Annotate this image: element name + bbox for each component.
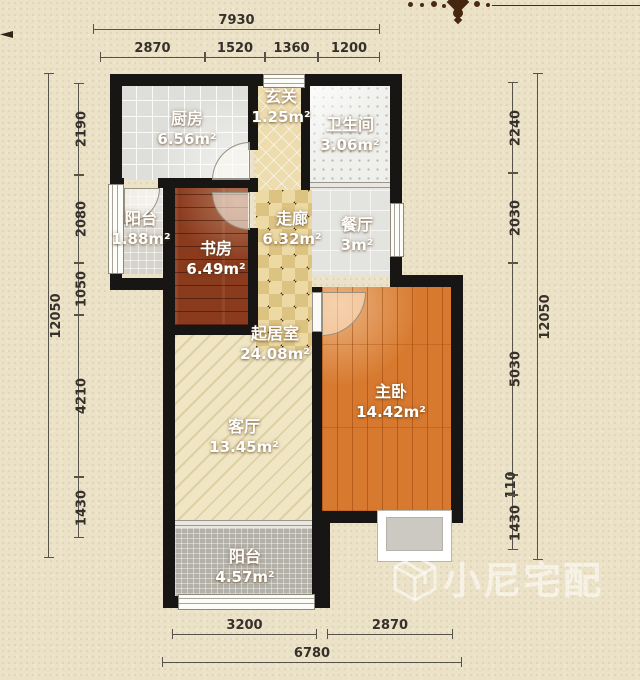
dim-top-seg-2: 1520 — [205, 47, 265, 58]
dim-label: 12050 — [538, 294, 553, 339]
wall — [312, 511, 382, 523]
entrance-door — [263, 74, 305, 88]
wall — [163, 325, 258, 335]
dim-left-seg-2: 2080 — [78, 175, 89, 263]
dim-label: 2190 — [75, 111, 90, 147]
wall — [248, 74, 258, 150]
dim-label: 1520 — [205, 41, 265, 56]
dim-top-seg-1: 2870 — [100, 47, 205, 58]
dim-label: 3200 — [172, 618, 317, 633]
dim-right-seg-5: 1430 — [512, 495, 523, 550]
dim-right-seg-4: 110 — [512, 475, 523, 495]
wall — [110, 74, 263, 86]
watermark-cube-icon — [393, 554, 437, 602]
dim-top-total: 7930 — [93, 19, 380, 30]
wall — [303, 74, 402, 86]
dim-right-total: 12050 — [537, 73, 548, 560]
wall — [301, 74, 310, 190]
dim-label: 2870 — [327, 618, 453, 633]
dim-top-seg-4: 1200 — [318, 47, 380, 58]
dim-label: 5030 — [509, 351, 524, 387]
dim-left-seg-1: 2190 — [78, 83, 89, 175]
dim-label: 6780 — [162, 646, 462, 661]
dining-window — [390, 203, 404, 257]
dim-label: 1200 — [318, 41, 380, 56]
watermark: 小尼宅配 — [393, 550, 603, 605]
dim-label: 1360 — [265, 41, 318, 56]
bay-window-sill — [386, 517, 443, 551]
dim-bottom-seg-1: 3200 — [172, 624, 317, 635]
room-entry-floor — [256, 84, 303, 190]
wall — [163, 178, 175, 290]
dim-left-seg-3: 1050 — [78, 263, 89, 315]
watermark-text: 小尼宅配 — [443, 550, 603, 605]
dim-label: 1430 — [509, 504, 524, 540]
dim-left-total: 12050 — [48, 73, 59, 558]
balcony-south-window — [178, 594, 315, 610]
edge-mark-icon — [0, 31, 13, 38]
balcony-north-window — [108, 184, 124, 274]
dim-label: 2030 — [509, 200, 524, 236]
dim-right-seg-1: 2240 — [512, 82, 523, 173]
dim-label: 12050 — [49, 293, 64, 338]
damask-ornament-icon — [400, 0, 640, 30]
dim-label: 2080 — [75, 201, 90, 237]
dim-left-seg-4: 4210 — [78, 315, 89, 477]
dim-label: 2870 — [100, 41, 205, 56]
wall — [248, 228, 258, 335]
dim-top-seg-3: 1360 — [265, 47, 318, 58]
room-balcony-south-floor — [175, 528, 312, 596]
room-bathroom-floor — [310, 84, 390, 182]
room-corridor-floor — [256, 190, 312, 350]
dim-label: 1050 — [75, 271, 90, 307]
floor-plan-canvas: 7930 2870 1520 1360 1200 3200 2870 6780 … — [0, 0, 640, 680]
wall — [110, 74, 122, 184]
dim-bottom-seg-2: 2870 — [327, 624, 453, 635]
dim-right-seg-3: 5030 — [512, 263, 523, 475]
room-living-floor — [175, 335, 312, 520]
dim-label: 4210 — [75, 378, 90, 414]
dim-label: 2240 — [509, 109, 524, 145]
room-dining-floor — [310, 190, 390, 275]
dim-label: 1430 — [75, 489, 90, 525]
dim-label: 7930 — [93, 13, 380, 28]
wall — [451, 275, 463, 523]
dim-bottom-total: 6780 — [162, 652, 462, 663]
master-bedroom-door-leaf — [312, 292, 322, 332]
dim-right-seg-2: 2030 — [512, 173, 523, 263]
dim-left-seg-5: 1430 — [78, 477, 89, 538]
